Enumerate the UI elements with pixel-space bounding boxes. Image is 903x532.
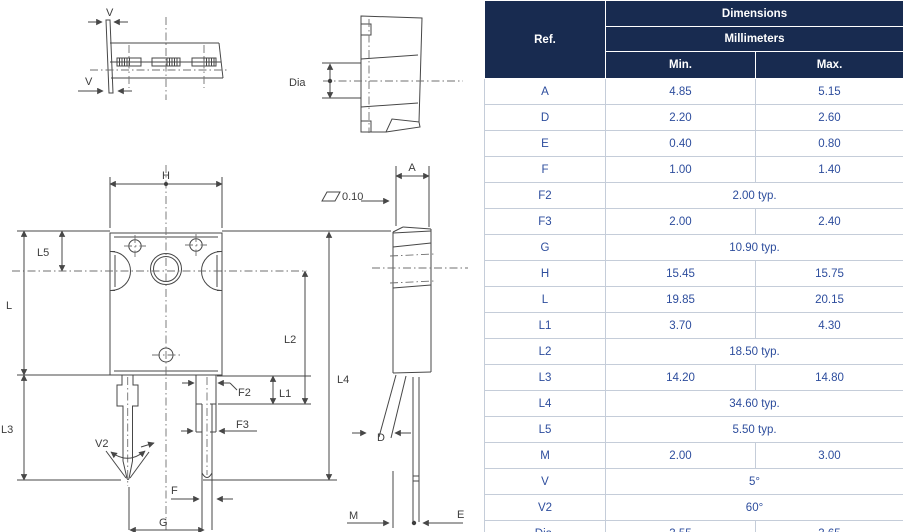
table-row: V260° — [485, 495, 903, 521]
dim-label-l1: L1 — [279, 388, 291, 400]
min-cell: 2.00 — [606, 443, 756, 469]
ref-cell: F2 — [485, 183, 606, 209]
ref-cell: E — [485, 131, 606, 157]
max-cell: 2.60 — [756, 105, 903, 131]
dim-dia: Dia — [289, 63, 361, 98]
ref-cell: L2 — [485, 339, 606, 365]
table-row: G10.90 typ. — [485, 235, 903, 261]
table-row: L314.2014.80 — [485, 365, 903, 391]
dim-label-m: M — [349, 510, 358, 522]
min-cell: 3.55 — [606, 521, 756, 532]
table-row: D2.202.60 — [485, 105, 903, 131]
table-row: F22.00 typ. — [485, 183, 903, 209]
ref-cell: G — [485, 235, 606, 261]
dim-m-e: M E — [347, 471, 464, 528]
hole-center-dot — [328, 79, 332, 83]
ref-cell: M — [485, 443, 606, 469]
dimensions-header: Dimensions — [606, 1, 903, 27]
ref-cell: A — [485, 79, 606, 105]
ref-header: Ref. — [485, 1, 606, 79]
min-cell: 2.20 — [606, 105, 756, 131]
max-cell: 4.30 — [756, 313, 903, 339]
dimensions-table: Ref. Dimensions Millimeters Min. Max. A4… — [484, 0, 903, 532]
min-cell: 1.00 — [606, 157, 756, 183]
dim-v2: V2 — [95, 438, 154, 478]
dim-label-l5: L5 — [37, 247, 49, 259]
table-row: H15.4515.75 — [485, 261, 903, 287]
dim-l5: L5 — [37, 231, 62, 271]
min-cell: 3.70 — [606, 313, 756, 339]
dim-label-v-bottom: V — [85, 76, 93, 88]
min-cell: 4.85 — [606, 79, 756, 105]
dim-label-f: F — [171, 485, 178, 497]
dim-f3: F3 — [181, 419, 257, 431]
dim-label-l3: L3 — [1, 424, 13, 436]
table-row: L434.60 typ. — [485, 391, 903, 417]
ref-cell: H — [485, 261, 606, 287]
flatness-callout: 0.10 — [322, 191, 389, 203]
span-cell: 5.50 typ. — [606, 417, 903, 443]
table-row: Dia.3.553.65 — [485, 521, 903, 532]
ref-cell: V — [485, 469, 606, 495]
dim-label-l: L — [6, 300, 12, 312]
dim-l2: L2 — [284, 271, 305, 404]
table-row: F32.002.40 — [485, 209, 903, 235]
table-row: F1.001.40 — [485, 157, 903, 183]
dim-l3: L3 — [1, 375, 24, 480]
millimeters-header: Millimeters — [606, 27, 903, 52]
table-row: E0.400.80 — [485, 131, 903, 157]
dim-label-v2: V2 — [95, 438, 108, 450]
ref-cell: L5 — [485, 417, 606, 443]
dim-l: L — [6, 231, 24, 375]
ref-cell: Dia. — [485, 521, 606, 532]
flatness-icon — [322, 192, 340, 201]
table-header-row: Ref. Dimensions — [485, 1, 903, 27]
span-cell: 2.00 typ. — [606, 183, 903, 209]
flange-edge — [106, 20, 113, 93]
dim-l1: L1 — [273, 376, 291, 404]
max-cell: 1.40 — [756, 157, 903, 183]
table-row: L55.50 typ. — [485, 417, 903, 443]
max-cell: 20.15 — [756, 287, 903, 313]
ref-cell: L1 — [485, 313, 606, 339]
max-cell: 5.15 — [756, 79, 903, 105]
min-cell: 14.20 — [606, 365, 756, 391]
ref-cell: F3 — [485, 209, 606, 235]
max-cell: 15.75 — [756, 261, 903, 287]
dim-label-a: A — [408, 162, 416, 174]
max-cell: 0.80 — [756, 131, 903, 157]
dim-label-g: G — [159, 517, 168, 529]
dim-label-h: H — [162, 170, 170, 182]
dim-label-dia: Dia — [289, 77, 306, 89]
dim-label-f2: F2 — [238, 387, 251, 399]
lead-right — [196, 375, 216, 530]
table-row: L13.704.30 — [485, 313, 903, 339]
span-cell: 18.50 typ. — [606, 339, 903, 365]
max-cell: 2.40 — [756, 209, 903, 235]
side-view-drawing: A 0.10 D — [322, 162, 468, 528]
package-outline-page: V V Dia — [0, 0, 903, 532]
min-cell: 19.85 — [606, 287, 756, 313]
min-cell: 0.40 — [606, 131, 756, 157]
flatness-value: 0.10 — [342, 191, 363, 203]
table-row: L19.8520.15 — [485, 287, 903, 313]
dim-label-l2: L2 — [284, 334, 296, 346]
table-row: V5° — [485, 469, 903, 495]
dim-label-v-top: V — [106, 7, 114, 19]
ref-cell: F — [485, 157, 606, 183]
table-row: M2.003.00 — [485, 443, 903, 469]
front-view-drawing: H L5 L L3 V2 — [1, 165, 391, 530]
dim-d: D — [352, 432, 411, 444]
hole-detail-drawing: Dia — [289, 16, 463, 133]
body-profile — [361, 16, 422, 132]
dim-label-l4: L4 — [337, 374, 349, 386]
dim-label-d: D — [377, 432, 385, 444]
min-cell: 2.00 — [606, 209, 756, 235]
max-cell: 3.65 — [756, 521, 903, 532]
dim-label-e: E — [457, 509, 464, 521]
ref-cell: L — [485, 287, 606, 313]
ref-cell: L4 — [485, 391, 606, 417]
ref-cell: D — [485, 105, 606, 131]
max-header: Max. — [756, 52, 903, 79]
span-cell: 60° — [606, 495, 903, 521]
technical-drawing: V V Dia — [0, 0, 484, 532]
span-cell: 34.60 typ. — [606, 391, 903, 417]
table-row: A4.855.15 — [485, 79, 903, 105]
dim-label-f3: F3 — [236, 419, 249, 431]
span-cell: 10.90 typ. — [606, 235, 903, 261]
ref-cell: V2 — [485, 495, 606, 521]
lead-end-dot — [412, 521, 416, 525]
table-row: L218.50 typ. — [485, 339, 903, 365]
side-leads — [379, 375, 419, 522]
dim-a: A — [396, 162, 429, 227]
max-cell: 14.80 — [756, 365, 903, 391]
min-cell: 15.45 — [606, 261, 756, 287]
max-cell: 3.00 — [756, 443, 903, 469]
ref-cell: L3 — [485, 365, 606, 391]
span-cell: 5° — [606, 469, 903, 495]
dim-g: G — [130, 517, 204, 530]
top-view-drawing: V V — [78, 7, 227, 100]
min-header: Min. — [606, 52, 756, 79]
dim-l4: L4 — [329, 232, 349, 480]
